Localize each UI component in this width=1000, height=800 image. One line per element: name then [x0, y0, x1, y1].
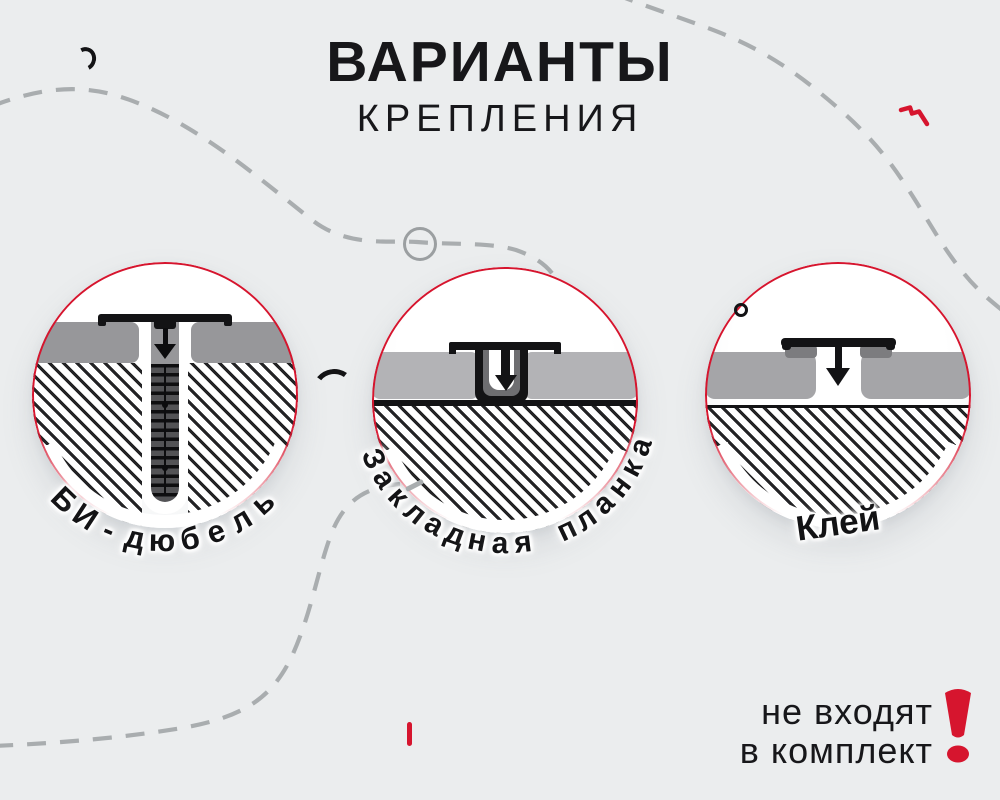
title-line-1: ВАРИАНТЫ [0, 34, 1000, 91]
note-line-1: не входят [740, 693, 933, 732]
circle-outline-icon [403, 227, 437, 261]
option-embedded-plank: Закладная планка [372, 267, 638, 533]
title-line-2: КРЕПЛЕНИЯ [0, 100, 1000, 138]
infographic-mounting-options: ВАРИАНТЫ КРЕПЛЕНИЯ БИ-дюбель [0, 0, 1000, 800]
page-title: ВАРИАНТЫ КРЕПЛЕНИЯ [0, 34, 1000, 138]
black-ring-icon [734, 303, 748, 317]
red-circle-rim [705, 262, 971, 528]
option-glue: Клей [705, 262, 971, 528]
not-included-note: не входят в комплект [740, 693, 933, 771]
exclamation-icon [940, 684, 976, 768]
option-bi-dowel: БИ-дюбель [32, 262, 298, 528]
red-tick-icon [407, 722, 412, 746]
note-line-2: в комплект [740, 732, 933, 771]
